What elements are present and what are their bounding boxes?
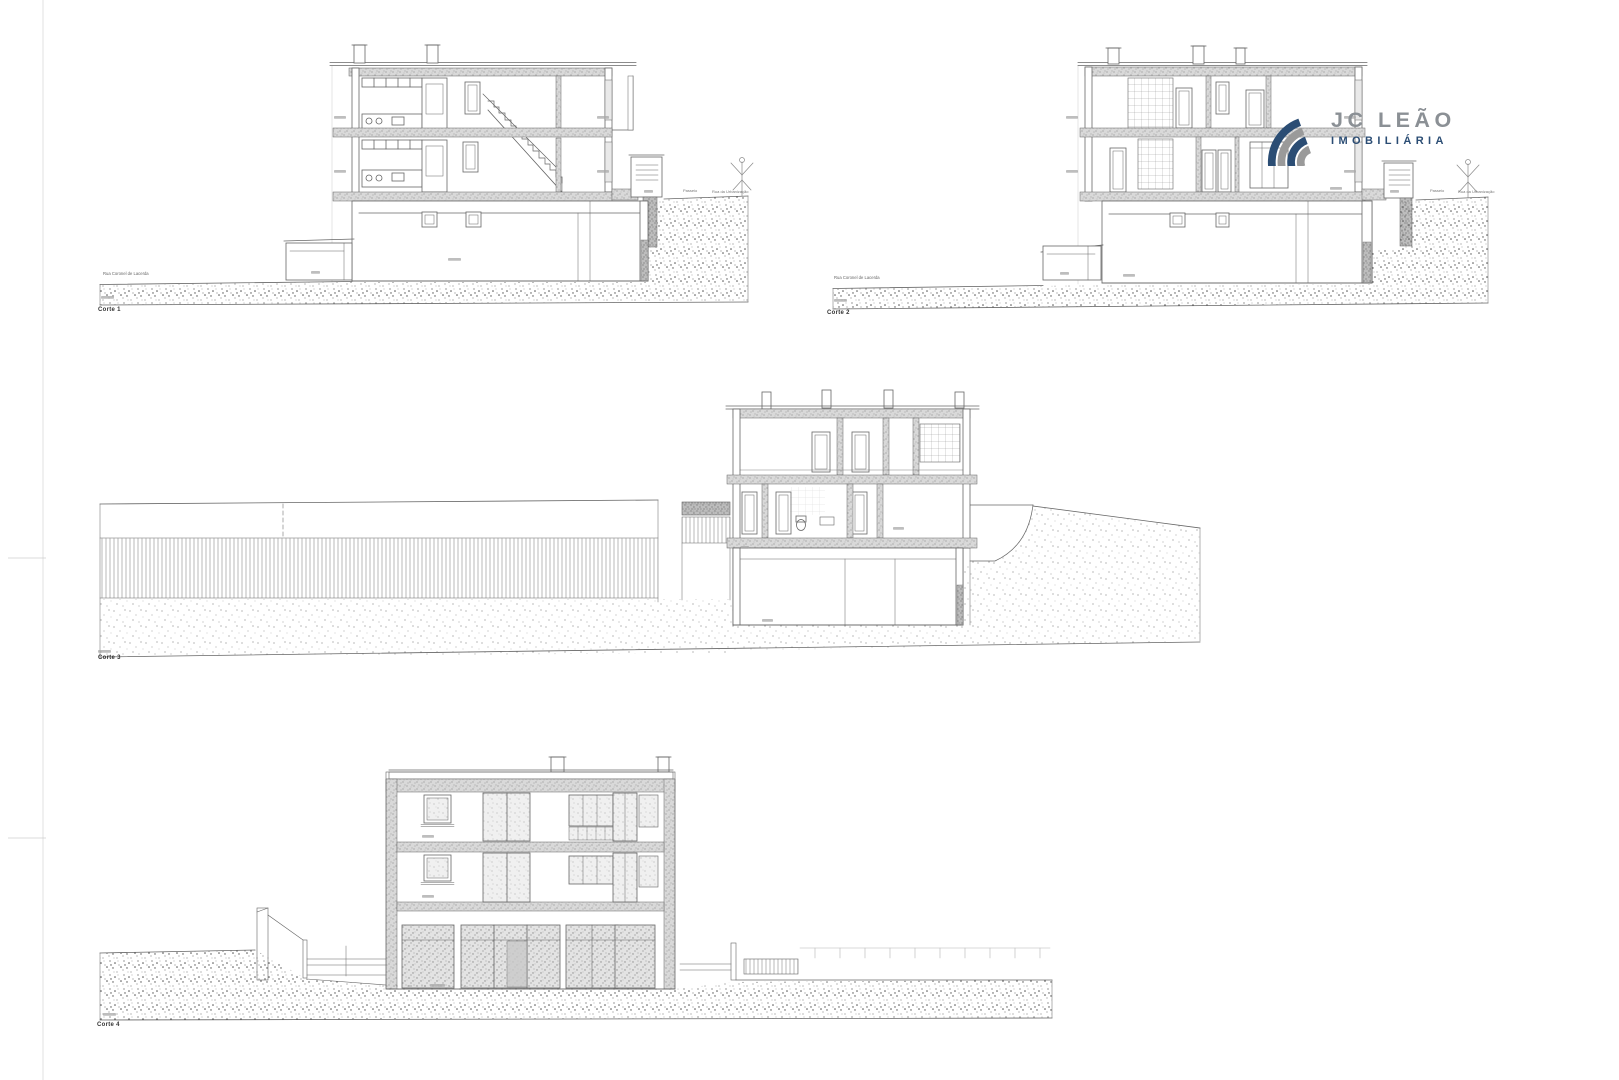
corte-1-title: Corte 1 [98, 307, 121, 313]
corte-1-linework [100, 45, 753, 305]
corte-2-title: Corte 2 [827, 310, 850, 316]
corte-1-sidewalk-label: Passeio [683, 189, 697, 193]
corte-1-street-left-label: Rua Coronel de Lacerda [103, 272, 149, 276]
corte-4-linework [100, 757, 1052, 1020]
logo: JC LEÃO IMOBILIÁRIA [1264, 110, 1456, 166]
corte-4-title: Corte 4 [97, 1022, 120, 1028]
wave-swoosh-icon [1264, 110, 1322, 166]
corte-2-sidewalk-label: Passeio [1430, 189, 1444, 193]
logo-name: JC LEÃO [1331, 110, 1456, 132]
corte-1-street-right-label: Rua da Urbanização [712, 190, 748, 194]
corte-3-linework [98, 390, 1200, 657]
corte-2-linework [833, 46, 1488, 309]
sheet-fold-line [8, 0, 46, 1080]
corte-2-street-right-label: Rua da Urbanização [1458, 190, 1494, 194]
logo-text: JC LEÃO IMOBILIÁRIA [1331, 110, 1456, 147]
drawing-sheet: Rua Coronel de Lacerda Passeio Rua da Ur… [0, 0, 1619, 1080]
logo-tagline: IMOBILIÁRIA [1331, 136, 1456, 147]
corte-2-street-left-label: Rua Coronel de Lacerda [834, 276, 880, 280]
corte-3-title: Corte 3 [98, 655, 121, 661]
